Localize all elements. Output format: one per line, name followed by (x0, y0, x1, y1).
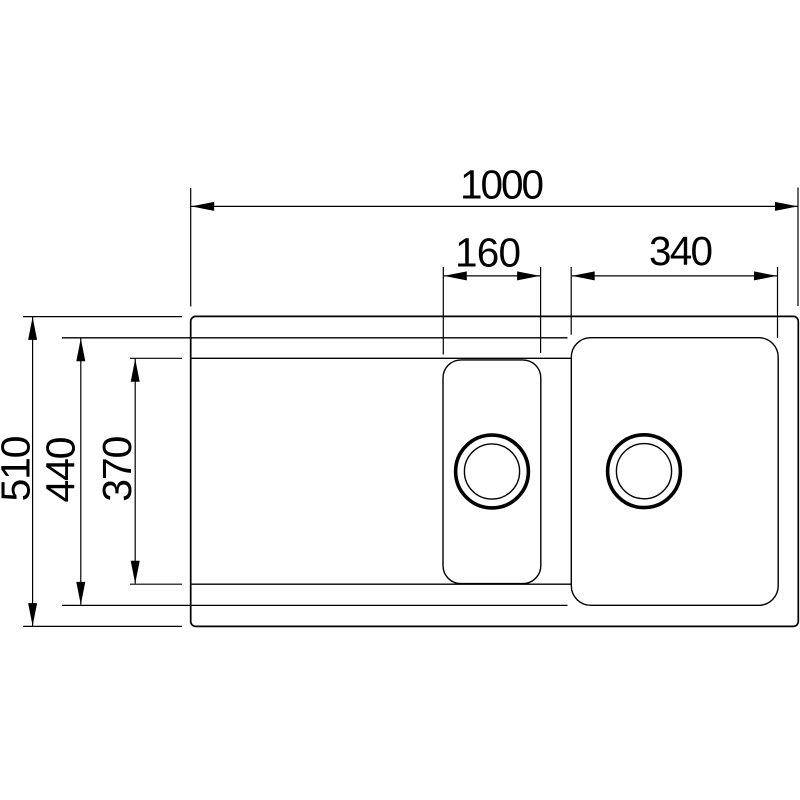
svg-text:440: 440 (38, 437, 84, 503)
svg-text:370: 370 (94, 436, 140, 502)
svg-text:340: 340 (649, 228, 713, 274)
svg-text:1000: 1000 (460, 162, 544, 208)
svg-text:160: 160 (455, 230, 521, 276)
svg-text:510: 510 (0, 436, 38, 502)
